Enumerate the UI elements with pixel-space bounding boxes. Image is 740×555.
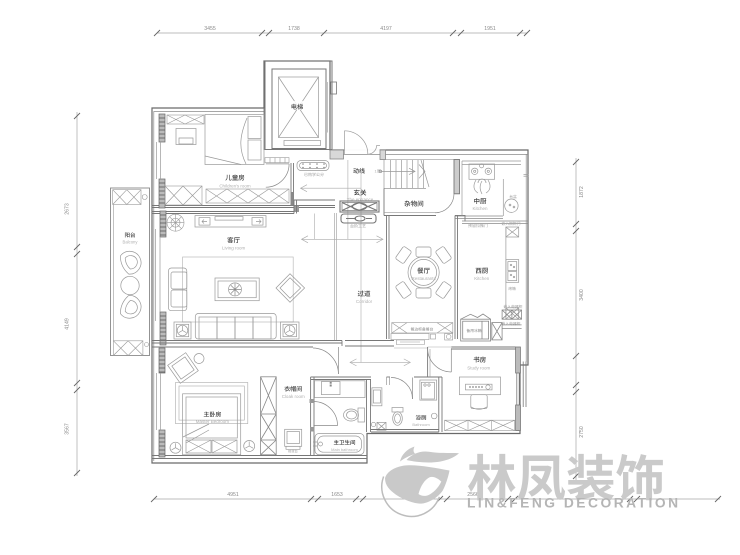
svg-text:2673: 2673 [65, 203, 71, 215]
svg-text:2750: 2750 [579, 426, 585, 438]
svg-text:LIN&FENG DECORATION: LIN&FENG DECORATION [467, 496, 681, 511]
svg-text:Kitchen: Kitchen [472, 206, 488, 211]
svg-text:1738: 1738 [288, 26, 300, 32]
svg-text:3567: 3567 [65, 423, 71, 435]
svg-text:Corridor: Corridor [356, 299, 373, 304]
svg-text:Balcony: Balcony [123, 240, 139, 245]
svg-text:Bathroom: Bathroom [412, 422, 430, 427]
svg-text:1951: 1951 [484, 26, 496, 32]
svg-text:Restaurants: Restaurants [411, 276, 436, 281]
svg-text:4149: 4149 [65, 318, 71, 330]
svg-text:Study room: Study room [467, 366, 490, 371]
svg-text:Main bathroom: Main bathroom [331, 447, 358, 452]
svg-text:Master Bedroom: Master Bedroom [196, 419, 230, 424]
svg-text:3455: 3455 [204, 26, 216, 32]
svg-text:Kitchen: Kitchen [474, 276, 490, 281]
svg-text:4197: 4197 [380, 26, 392, 32]
svg-text:Children's room: Children's room [219, 184, 251, 189]
svg-text:1653: 1653 [331, 492, 343, 498]
svg-text:Cloak room: Cloak room [282, 394, 305, 399]
svg-text:4951: 4951 [227, 492, 239, 498]
svg-text:3400: 3400 [579, 289, 585, 301]
svg-text:Living room: Living room [222, 246, 246, 251]
svg-text:1872: 1872 [579, 186, 585, 198]
